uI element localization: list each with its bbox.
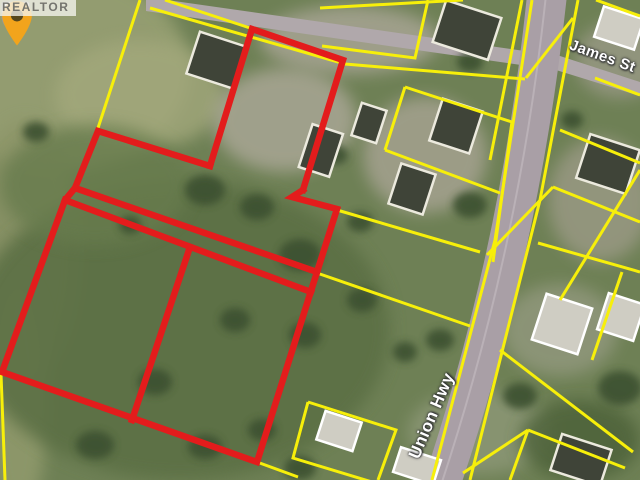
parcel-line (320, 0, 463, 8)
satellite-layer (0, 0, 640, 480)
map-canvas[interactable]: 28 28 James St Union Hwy REALTOR (0, 0, 640, 480)
realtor-watermark: REALTOR (0, 0, 76, 16)
